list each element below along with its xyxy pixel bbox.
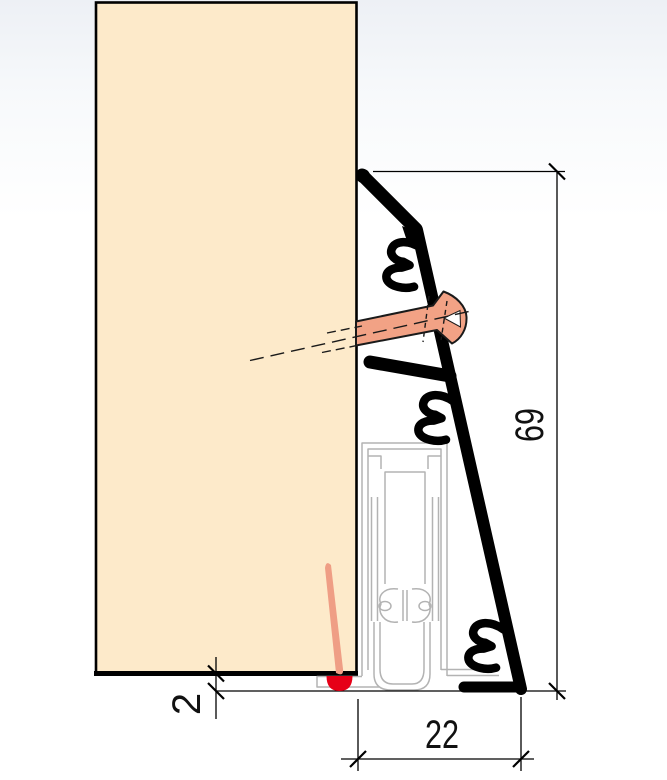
clip-channel-top xyxy=(384,239,423,290)
seal-carrier xyxy=(385,472,425,584)
seal-clamp-left xyxy=(380,589,398,622)
seal-clamp-right xyxy=(412,589,430,622)
clip-channel-middle xyxy=(416,392,455,443)
seal-hook-left xyxy=(368,456,381,469)
sealant-drop xyxy=(327,676,353,691)
clip-channel-bottom xyxy=(466,620,505,671)
profile-support-strut xyxy=(370,362,450,376)
dimension-width-22: 22 xyxy=(341,697,534,771)
seal-hook-right xyxy=(428,456,441,469)
dimension-label-height: 69 xyxy=(508,408,552,442)
seal-rubber-gasket-inner xyxy=(380,622,424,684)
profile-top-flange xyxy=(362,175,416,229)
dimension-label-gap: 2 xyxy=(165,693,209,715)
cross-section-drawing: 69 22 2 xyxy=(0,0,667,780)
wall xyxy=(94,3,358,674)
wall-body xyxy=(96,3,357,674)
technical-drawing-page: 69 22 2 xyxy=(0,0,667,780)
dimension-label-width: 22 xyxy=(425,713,459,757)
